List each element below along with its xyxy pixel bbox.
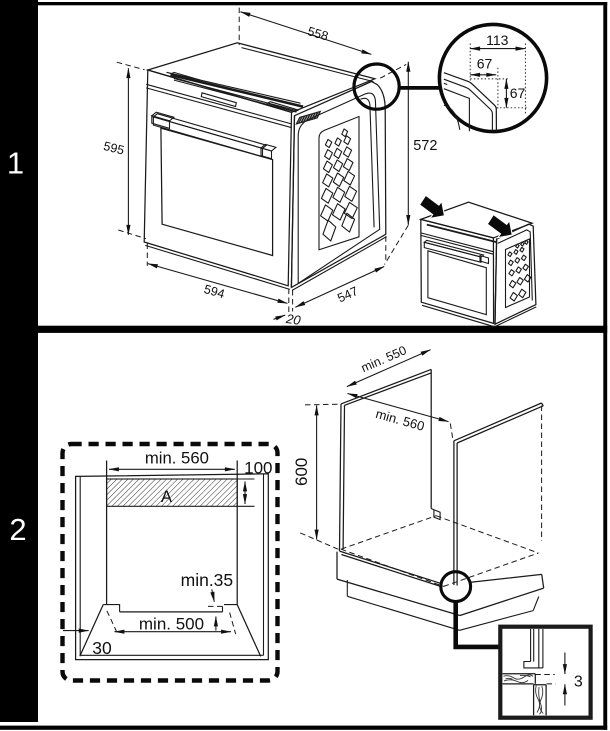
svg-text:113: 113: [486, 32, 509, 48]
svg-text:3: 3: [574, 673, 583, 690]
svg-text:100: 100: [244, 459, 272, 478]
svg-text:30: 30: [92, 638, 112, 658]
svg-text:20: 20: [284, 311, 302, 328]
svg-text:min.35: min.35: [181, 570, 234, 590]
svg-text:min. 500: min. 500: [139, 615, 204, 634]
svg-text:1: 1: [7, 146, 24, 181]
svg-text:A: A: [161, 488, 172, 506]
svg-text:2: 2: [9, 512, 26, 547]
svg-text:min. 560: min. 560: [145, 448, 209, 467]
svg-text:600: 600: [292, 458, 311, 486]
svg-text:67: 67: [477, 56, 493, 72]
svg-text:572: 572: [413, 138, 437, 154]
svg-text:67: 67: [510, 85, 526, 101]
